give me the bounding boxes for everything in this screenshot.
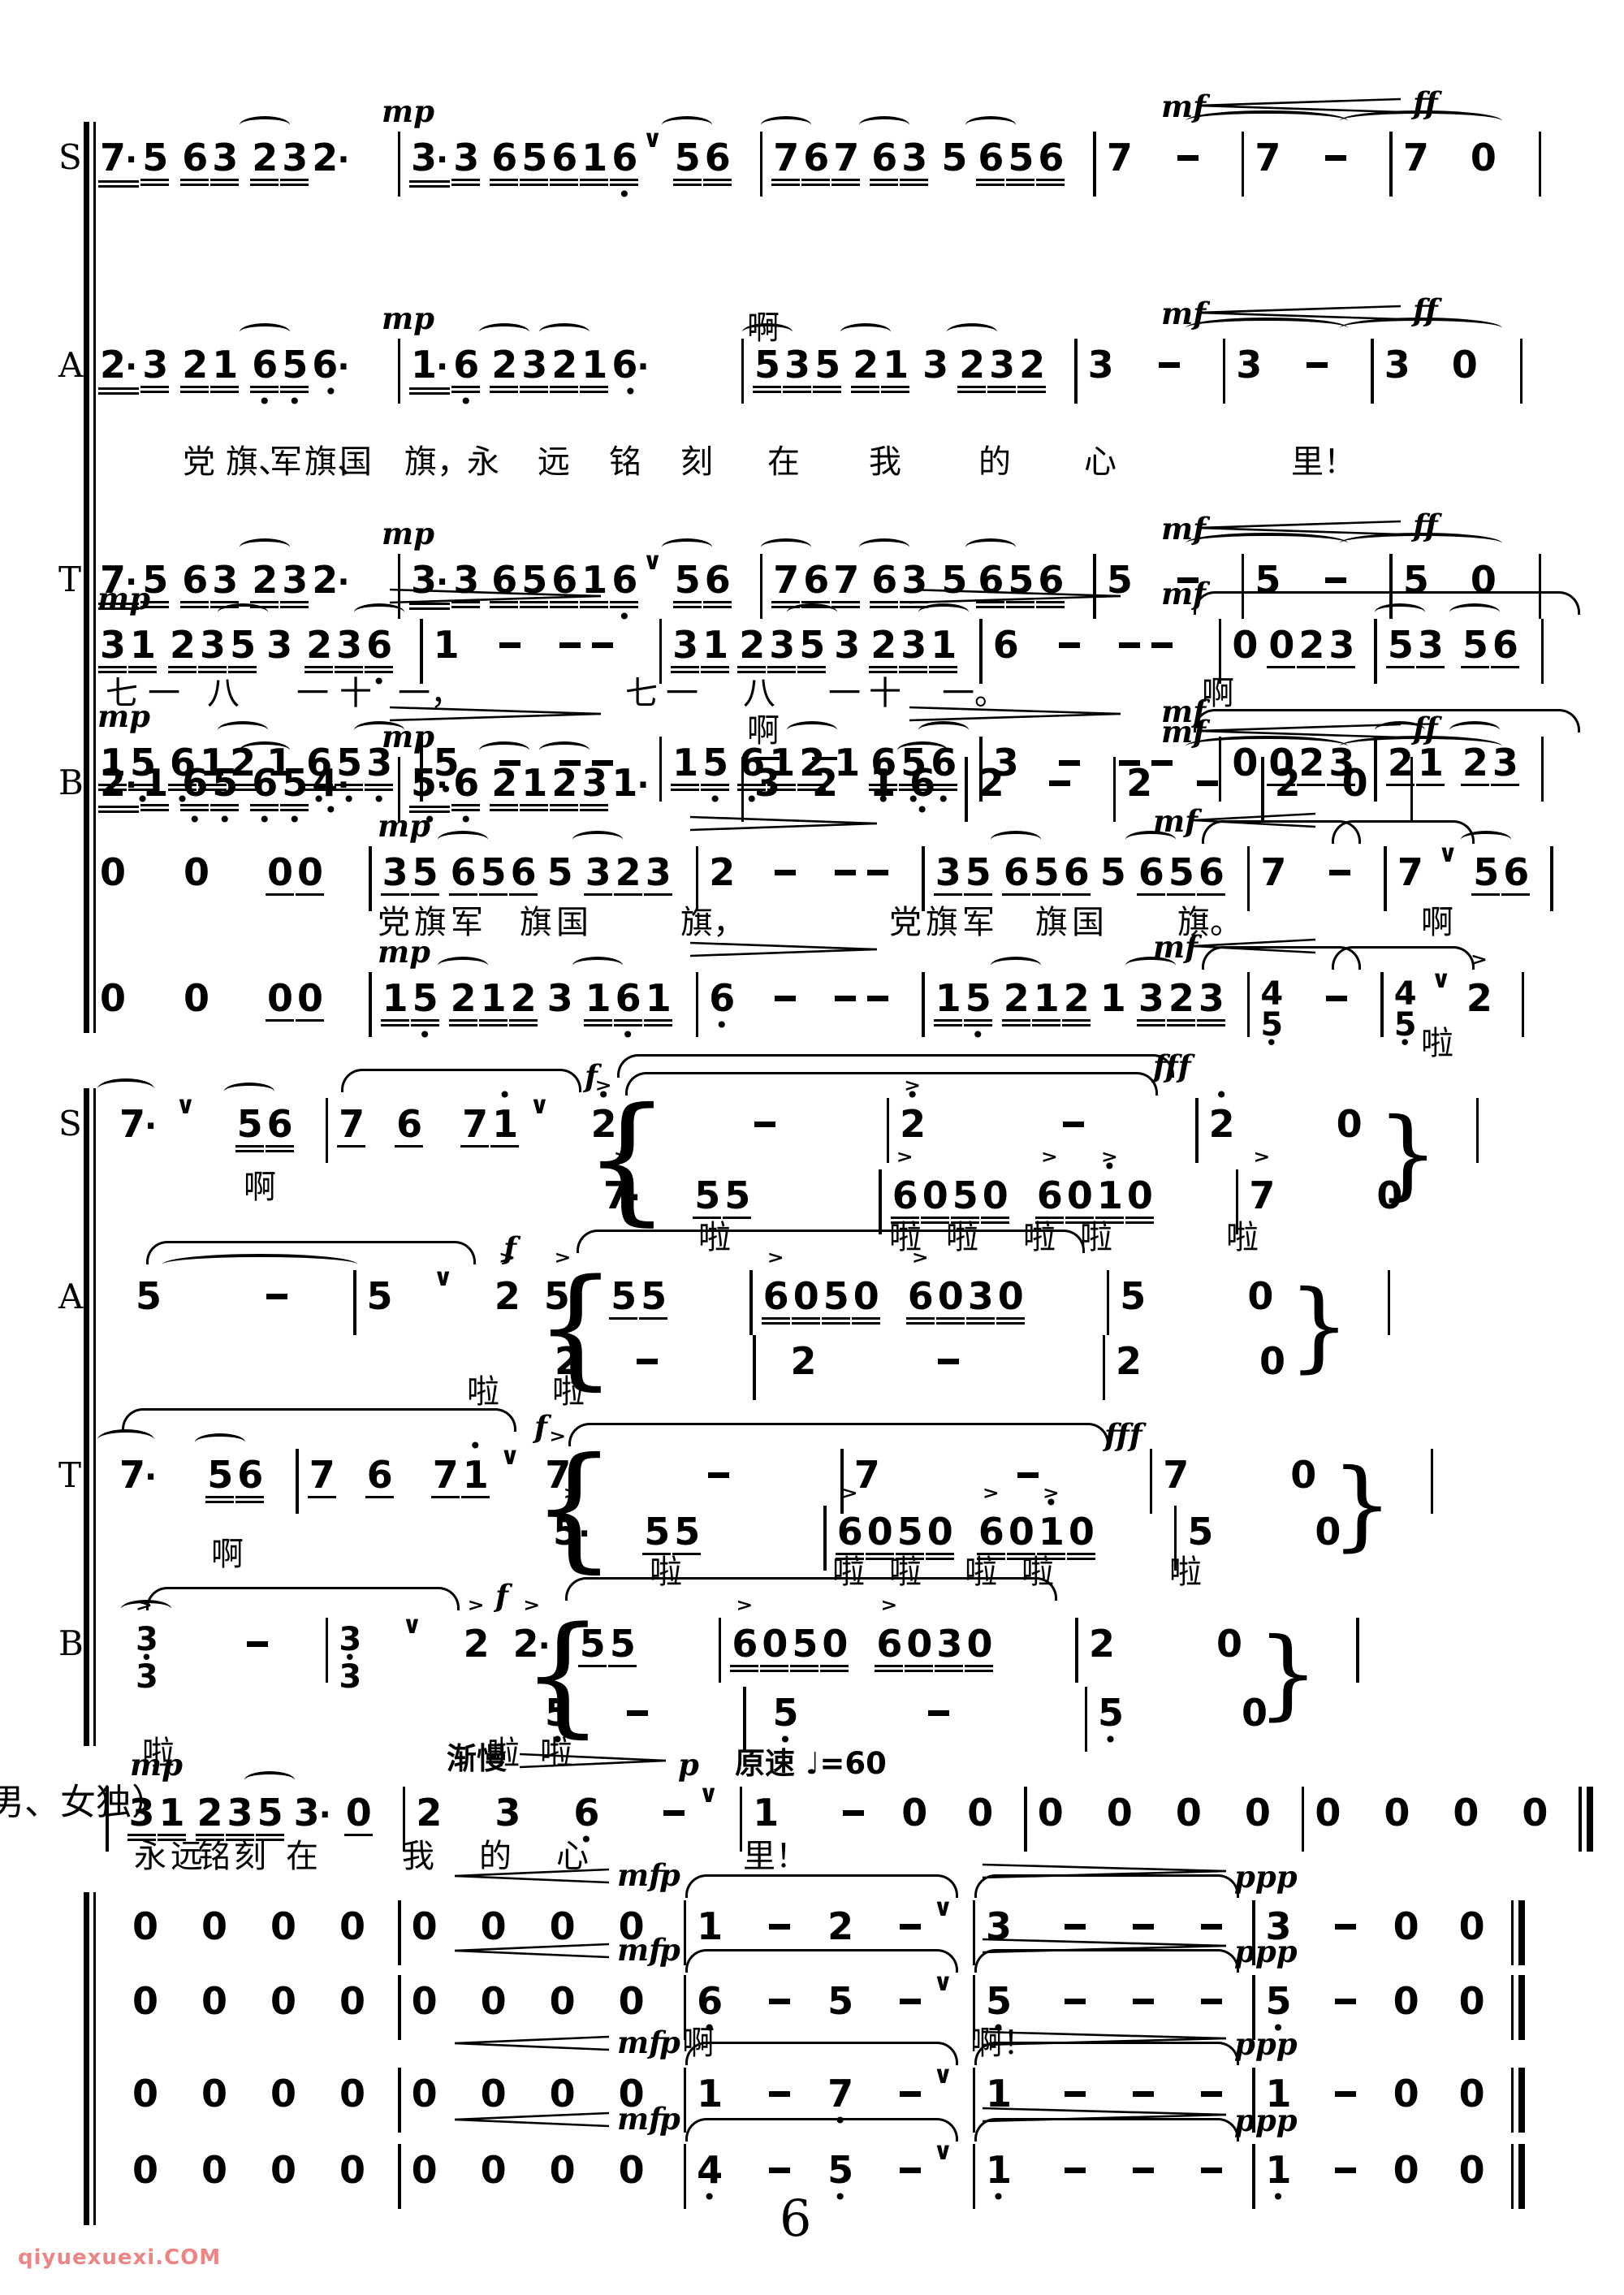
note: 2 [709, 853, 734, 892]
digit: 7 [119, 1102, 145, 1146]
duration-dash [1195, 1982, 1228, 2004]
digit-group: 1 [266, 743, 292, 782]
tie-slur [1340, 533, 1502, 554]
digit-group: 2 [1089, 1624, 1114, 1663]
digit-group: 5 [641, 1277, 666, 1316]
note: 3 [142, 345, 167, 384]
digit: 6 [705, 136, 730, 179]
digit: 3 [769, 623, 794, 667]
note: 7 [339, 1104, 364, 1143]
digit: 6 [931, 741, 956, 784]
digit-group: 1 [1039, 1512, 1064, 1551]
note: 5 [754, 345, 780, 384]
rest: 0 [1038, 1793, 1063, 1832]
note: 3 [129, 1793, 154, 1832]
digit: 1 [769, 741, 794, 784]
final-barline [1511, 2068, 1526, 2133]
lyric: 刻 [234, 1839, 266, 1874]
digit: 2 [1209, 1102, 1234, 1146]
note: 3 [521, 345, 546, 384]
digit: 1 [200, 741, 225, 784]
digit: 2 [312, 136, 337, 179]
augmentation-dot: · [145, 1459, 157, 1496]
digit-group: 5 [207, 1455, 232, 1494]
note: 6• [709, 979, 734, 1018]
digit: 2 [1089, 1622, 1114, 1666]
octave-dot-low: • [312, 387, 349, 397]
note: 5 [207, 1455, 232, 1494]
digit-group: 0 [901, 1793, 926, 1832]
digit-group: 1 [581, 138, 607, 177]
slur [240, 323, 290, 341]
digit-group: 7 [433, 1455, 458, 1494]
digit-group: 5 [901, 743, 926, 782]
digit: 6 [237, 1453, 262, 1497]
digit: 5 [724, 1173, 749, 1217]
digit-group: 0 [1009, 1512, 1034, 1551]
digit-group: 0 [922, 1176, 948, 1215]
digit: 0 [1459, 1904, 1484, 1948]
note: 2· [312, 560, 349, 601]
note: 1 [1418, 743, 1443, 782]
digit-group: 6 [611, 560, 637, 599]
digit: 6 [491, 136, 516, 179]
digit: 5 [207, 1453, 232, 1497]
digit-group: 0 [550, 1907, 575, 1946]
chord: 45• [1260, 979, 1282, 1047]
voice-label: B [58, 765, 84, 801]
digit-group: 6 [803, 138, 828, 177]
digit: 5 [675, 558, 700, 602]
duration-dash [1301, 345, 1333, 368]
digit: 1 [1039, 1510, 1064, 1554]
barline [1093, 132, 1096, 197]
lyric: 铭 [609, 444, 641, 480]
digit: 3 [282, 136, 307, 179]
duration-dash [1012, 1455, 1044, 1478]
digit: 3 [901, 136, 926, 179]
note: 5 [412, 853, 438, 892]
note: 5• [965, 979, 991, 1018]
slur [947, 323, 997, 341]
digit: 5 [1187, 1510, 1212, 1554]
barline [1541, 619, 1544, 684]
decrescendo-hairpin-icon [390, 706, 601, 725]
duration-dash [862, 979, 894, 1001]
chord-note: 4 [1260, 979, 1282, 1009]
slur [539, 323, 590, 341]
lyric: 啊 [1202, 676, 1234, 711]
barline [753, 1335, 756, 1400]
digit: 0 [1107, 1791, 1132, 1835]
lyric: 国 [339, 444, 372, 480]
digit: 3 [266, 623, 292, 667]
digit-group: 2 [555, 1342, 580, 1381]
digit: 1 [935, 976, 961, 1020]
digit: 3 [993, 741, 1018, 784]
slur [991, 831, 1041, 849]
note: 7· [119, 1104, 157, 1145]
digit-group: 5 [799, 625, 824, 664]
note: >6 [892, 1176, 918, 1215]
barline [398, 2068, 401, 2133]
slur [572, 831, 623, 849]
digit: 1 [585, 976, 611, 1020]
rest: 0 [1522, 1793, 1547, 1832]
breath-mark-icon: ∨ [698, 1780, 718, 1809]
slur [662, 538, 712, 556]
digit: 6 [803, 558, 828, 602]
digit-group: 6 [1492, 625, 1518, 664]
barline [1539, 132, 1542, 197]
dynamic-mark: mf [617, 1860, 662, 1891]
digit-group: 5 [897, 1512, 922, 1551]
digit: 0 [1242, 1691, 1267, 1735]
barline [296, 1449, 299, 1514]
octave-dot-low: • [615, 1031, 641, 1040]
digit: 0 [1232, 741, 1257, 784]
note: >2 [1466, 979, 1492, 1018]
digit: 2 [491, 343, 516, 387]
phrase-slur [577, 1230, 1085, 1253]
rest: 0 [481, 1982, 506, 2021]
lyric: 永 [467, 444, 499, 480]
digit: 0 [966, 1622, 991, 1666]
note: 3 [453, 138, 478, 177]
note: 3 [1328, 625, 1354, 664]
digit-group: 6 [182, 560, 207, 599]
digit-group: 5 [282, 345, 307, 384]
digit: 2 [739, 623, 764, 667]
digit: 6 [837, 1510, 862, 1554]
digit-group: 6 [892, 1176, 918, 1215]
digit: 3 [1138, 976, 1164, 1020]
barline [979, 619, 983, 684]
note: 7 [433, 1455, 458, 1494]
digit: 0 [901, 1791, 926, 1835]
digit-group: 6 [252, 345, 277, 384]
digit: 5 [1034, 850, 1059, 894]
note: 1 [130, 625, 155, 664]
digit-group: 2 [900, 1104, 925, 1143]
duration-dash [1127, 2150, 1160, 2173]
digit-group: 2 [451, 979, 476, 1018]
note: 3 [585, 853, 611, 892]
digit-group: 6 [1503, 853, 1528, 892]
note: 5 [799, 625, 824, 664]
digit: 1 [266, 741, 292, 784]
digit-group: 0 [1459, 2074, 1484, 2113]
lyric: 七 [625, 676, 658, 711]
digit-group: 0 [412, 1907, 437, 1946]
digit-group: 0 [1232, 743, 1257, 782]
note: >6 [1037, 1176, 1062, 1215]
digit: 1 [434, 623, 459, 667]
digit: 5 [702, 741, 728, 784]
lyric: 一 [666, 676, 698, 711]
digit: 0 [1393, 2148, 1419, 2192]
barline [684, 2144, 687, 2209]
digit: 1 [1034, 976, 1059, 1020]
digit: 5 [641, 1274, 666, 1318]
note: 3 [200, 625, 225, 664]
rest: 0 [270, 2074, 296, 2113]
digit-group: 7 [1249, 1176, 1274, 1215]
digit: 1 [100, 741, 125, 784]
digit-group: 0 [132, 2150, 158, 2189]
digit: 5 [230, 623, 255, 667]
digit: 1 [702, 623, 728, 667]
barline [684, 1900, 687, 1965]
digit: 5 [257, 1791, 283, 1835]
digit: 0 [1009, 1510, 1034, 1554]
note: 5 [1462, 625, 1488, 664]
digit-group: 5 [675, 138, 700, 177]
dynamic-mark: fff [1104, 1420, 1142, 1450]
note: 6 [511, 853, 536, 892]
digit: 5 [1462, 623, 1488, 667]
duration-dash [554, 743, 586, 766]
note: 3 [834, 625, 859, 664]
phrase-slur [1194, 591, 1580, 615]
slur [218, 603, 268, 621]
note: 3 [968, 1277, 993, 1316]
duration-dash [1059, 1982, 1091, 2004]
digit-group: 0 [1459, 1982, 1484, 2021]
digit-group: 0 [1247, 1277, 1272, 1316]
note: 1 [200, 743, 225, 782]
digit-group: 0 [132, 1907, 158, 1946]
digit-group: 1 [1097, 1176, 1122, 1215]
digit: 0 [297, 850, 322, 894]
digit: 1 [481, 976, 506, 1020]
barline [887, 1098, 890, 1163]
digit-group: 2 [1298, 743, 1324, 782]
digit: 5 [1008, 136, 1033, 179]
lyric: 十 [869, 676, 901, 711]
note: >2 [495, 1277, 520, 1316]
duration-dash [1146, 625, 1178, 648]
digit: 3 [227, 1791, 253, 1835]
digit: 0 [132, 2148, 158, 2192]
dynamic-mark: ppp [1234, 2029, 1298, 2059]
barline [1247, 846, 1250, 911]
rest: 0 [184, 979, 209, 1018]
note: 5 [675, 138, 700, 177]
digit-group: 0 [270, 2150, 296, 2189]
system-brace [84, 1892, 96, 2225]
lyric: 啦 [1421, 1026, 1453, 1061]
duration-dash [1127, 1982, 1160, 2004]
digit-group: 0 [201, 1982, 227, 2021]
dynamic-mark: p [678, 1749, 699, 1780]
digit: 6 [511, 850, 536, 894]
note: 5 [367, 1277, 392, 1316]
digit: 0 [339, 2148, 365, 2192]
digit-group: 0 [793, 1277, 818, 1316]
note: 3 [646, 853, 671, 892]
note: 3 [212, 560, 237, 599]
digit-group: 6 [837, 1512, 862, 1551]
digit-group: 3 [989, 345, 1014, 384]
slur [761, 116, 811, 134]
digit-group: 6 [705, 138, 730, 177]
digit: 5 [481, 850, 506, 894]
rest: 0 [481, 1907, 506, 1946]
digit-group: 6 [803, 560, 828, 599]
digit-group: 2 [495, 1277, 520, 1316]
digit: 0 [1459, 2148, 1484, 2192]
duration-dash [494, 743, 526, 766]
rest: 0 [184, 853, 209, 892]
digit-group: 0 [1393, 2150, 1419, 2189]
accent-icon: > [1249, 1147, 1274, 1167]
digit: 3 [1236, 343, 1261, 387]
note: 1 [100, 743, 125, 782]
digit: 5 [130, 741, 155, 784]
dynamic-mark: mp [382, 96, 434, 127]
digit: 1 [1418, 741, 1443, 784]
phrase-slur [685, 2042, 958, 2065]
note: 2 [170, 625, 195, 664]
note: 1 [434, 625, 459, 664]
barline [1541, 737, 1544, 802]
note: 5 [521, 138, 546, 177]
slur [438, 957, 488, 975]
digit-group: 0 [967, 1793, 992, 1832]
digit: 0 [1452, 343, 1477, 387]
digit: 5 [694, 1173, 719, 1217]
score-line: >5·55>6050>60>•1050啦啦啦啦啦啦 [97, 1512, 1342, 1571]
note: 6 [367, 1455, 392, 1494]
score-line: 000015•212316•16•15•212132345•45•∨>2啦mpm… [97, 979, 1532, 1047]
dynamic-mark: mp [382, 518, 434, 549]
rest: 0 [339, 2074, 365, 2113]
dynamic-mark: p [659, 1934, 680, 1965]
digit-group: 7 [833, 138, 858, 177]
digit-group: 2 [197, 1793, 222, 1832]
note: 5 [644, 1512, 669, 1551]
note: 3· [294, 1793, 331, 1834]
score-line: 7·∨56767•1∨>•2>•2•20}啊f{fff [97, 1104, 1487, 1169]
digit: 0 [346, 1791, 371, 1835]
octave-dot-low: • [306, 795, 331, 805]
digit: 0 [201, 1979, 227, 2023]
slur [840, 323, 891, 341]
digit: 6 [366, 623, 391, 667]
digit-group: 3 [227, 1793, 253, 1832]
note: 3• [366, 743, 391, 782]
note: 3 [993, 743, 1018, 782]
duration-dash [1172, 138, 1204, 161]
lyric: 旗， [680, 905, 745, 940]
digit-group: 3 [935, 853, 961, 892]
decrescendo-hairpin-icon [983, 1863, 1226, 1882]
digit-group: 3 [212, 560, 237, 599]
digit-group: 3 [922, 345, 948, 384]
slur [761, 538, 811, 556]
barline [1384, 846, 1387, 911]
slur [991, 957, 1041, 975]
digit-group: 6 [453, 345, 478, 384]
digit-group: 2 [306, 625, 331, 664]
digit: 0 [1245, 1791, 1270, 1835]
note: 3 [282, 560, 307, 599]
digit-group: 0 [1067, 1176, 1092, 1215]
note: 3· [411, 138, 448, 179]
note: 1 [646, 979, 671, 1018]
barline [1093, 554, 1096, 619]
digit-group: 7· [119, 1455, 157, 1496]
note: •1 [463, 1455, 488, 1494]
note: 5 [136, 1277, 161, 1316]
barline [369, 846, 372, 911]
rest: 0 [1376, 1176, 1402, 1215]
note: >•1 [1039, 1512, 1064, 1551]
digit: 7 [1403, 136, 1428, 179]
digit: 0 [1315, 1510, 1340, 1554]
digit: 2 [709, 850, 734, 894]
digit-group: 3 [336, 625, 361, 664]
digit-group: 5 [1388, 625, 1413, 664]
digit: 6 [182, 136, 207, 179]
barline [398, 1975, 401, 2040]
note: 1 [382, 979, 408, 1018]
digit: 7 [1255, 136, 1280, 179]
digit: 5 [136, 1274, 161, 1318]
duration-dash [631, 1342, 663, 1364]
digit-group: 5 [547, 853, 572, 892]
digit: 0 [412, 1979, 437, 2023]
note: 2 [1116, 1342, 1141, 1381]
digit-group: 3 [100, 625, 125, 664]
note: 2 [1064, 979, 1089, 1018]
barline [398, 2144, 401, 2209]
note: 3 [212, 138, 237, 177]
dynamic-mark: ppp [1234, 2105, 1298, 2136]
digit: 0 [132, 1904, 158, 1948]
note: 3 [382, 853, 408, 892]
digit-group: 5 [481, 853, 506, 892]
rest: 0 [1069, 1512, 1094, 1551]
rest: 0 [853, 1277, 879, 1316]
digit-group: 6 [551, 138, 577, 177]
digit: 5 [553, 1510, 578, 1554]
digit: 6 [1004, 850, 1029, 894]
breath-mark-icon: ∨ [175, 1091, 195, 1120]
barline [1356, 1618, 1359, 1683]
barline [760, 554, 763, 619]
digit-group: 6 [739, 743, 764, 782]
digit-group: 2 [959, 345, 984, 384]
digit-group: 5 [792, 1624, 817, 1663]
digit-group: 3 [129, 1793, 154, 1832]
note: 1 [931, 625, 956, 664]
octave-dot-low: • [130, 795, 155, 805]
digit: 5 [521, 136, 546, 179]
digit-group: 0 [100, 979, 125, 1018]
duration-dash [658, 1793, 690, 1816]
digit-group: 0 [201, 2150, 227, 2189]
digit: 5 [827, 1979, 853, 2023]
lyric: 一 [148, 676, 180, 711]
breath-mark-icon: ∨ [1432, 966, 1451, 994]
octave-dot-low: • [739, 795, 764, 805]
note: >5· [553, 1512, 590, 1553]
rest: 0 [201, 2074, 227, 2113]
phrase-slur [565, 1577, 1057, 1601]
digit: 3 [1328, 741, 1354, 784]
